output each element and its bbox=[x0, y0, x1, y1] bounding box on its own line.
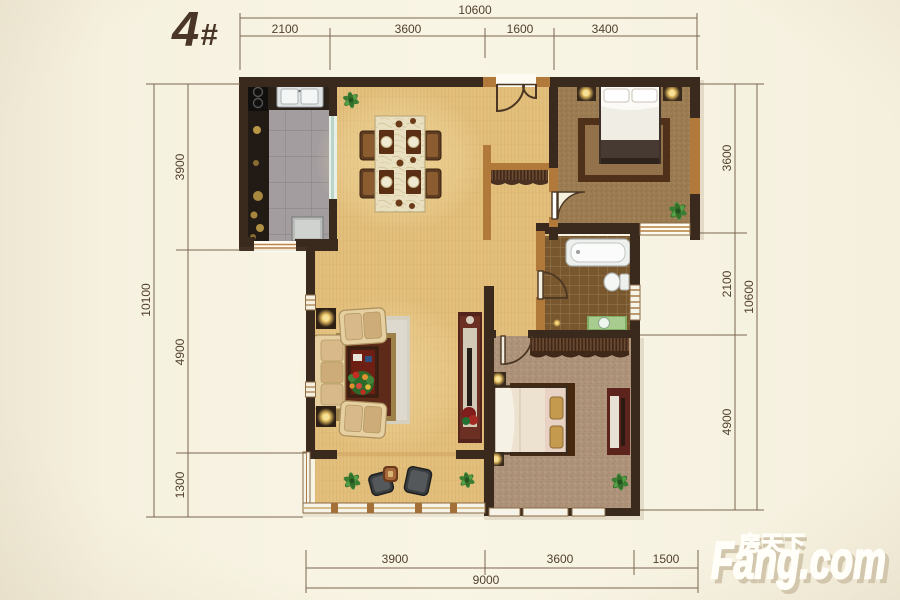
svg-text:3600: 3600 bbox=[547, 552, 574, 566]
svg-text:4900: 4900 bbox=[720, 408, 734, 435]
svg-text:3600: 3600 bbox=[720, 144, 734, 171]
svg-text:3600: 3600 bbox=[395, 22, 422, 36]
svg-text:3900: 3900 bbox=[382, 552, 409, 566]
svg-text:2100: 2100 bbox=[720, 270, 734, 297]
svg-text:9000: 9000 bbox=[473, 573, 500, 587]
svg-text:3900: 3900 bbox=[173, 153, 187, 180]
svg-text:10600: 10600 bbox=[458, 3, 492, 17]
svg-text:1500: 1500 bbox=[653, 552, 680, 566]
svg-text:10600: 10600 bbox=[742, 280, 756, 314]
svg-text:Fang.com: Fang.com bbox=[711, 532, 886, 590]
svg-text:4900: 4900 bbox=[173, 338, 187, 365]
svg-text:1600: 1600 bbox=[507, 22, 534, 36]
svg-text:2100: 2100 bbox=[272, 22, 299, 36]
svg-text:1300: 1300 bbox=[173, 471, 187, 498]
svg-text:10100: 10100 bbox=[139, 283, 153, 317]
svg-text:3400: 3400 bbox=[592, 22, 619, 36]
